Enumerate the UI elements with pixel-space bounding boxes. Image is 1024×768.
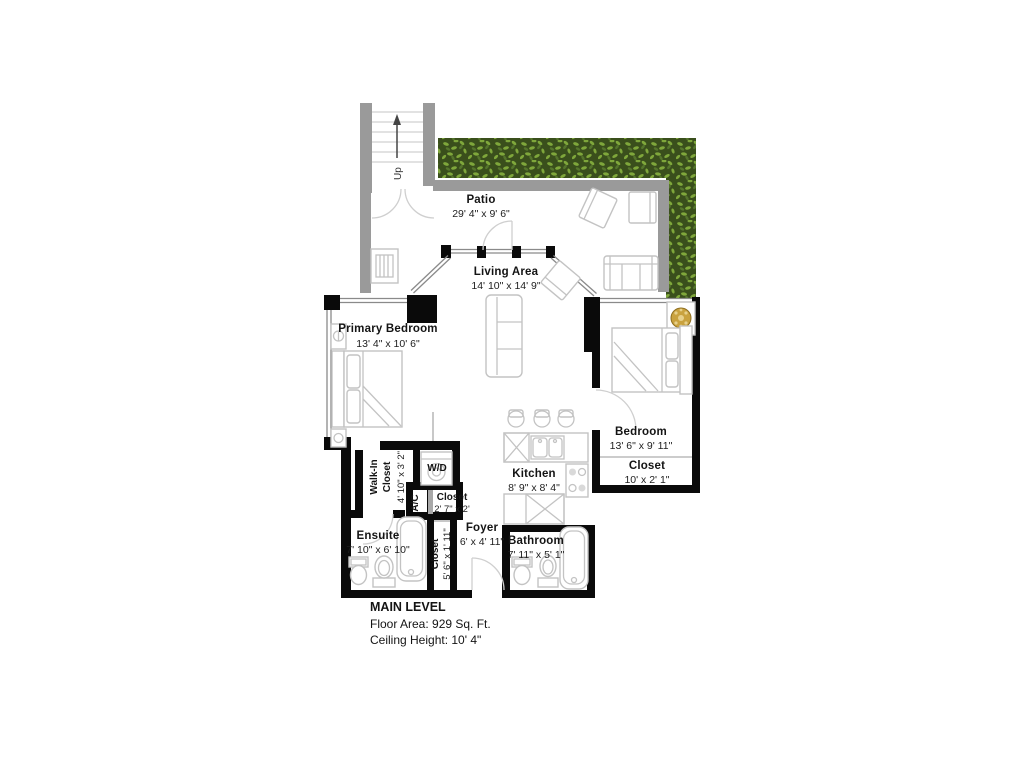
- svg-text:Primary Bedroom: Primary Bedroom: [338, 323, 438, 335]
- stair-door-arc: [405, 189, 434, 218]
- room-label-ac: A/C: [410, 494, 421, 511]
- room-label-patio: Patio 29' 4" x 9' 6": [452, 194, 510, 220]
- svg-text:Closet: Closet: [430, 538, 441, 569]
- svg-text:13' 4" x 10' 6": 13' 4" x 10' 6": [356, 338, 420, 350]
- svg-text:Kitchen: Kitchen: [512, 468, 556, 480]
- room-label-living-area: Living Area 14' 10" x 14' 9": [471, 266, 541, 292]
- patio-sofa: [604, 256, 658, 290]
- svg-text:Ensuite: Ensuite: [357, 530, 400, 542]
- svg-text:4' 10" x 3' 2": 4' 10" x 3' 2": [396, 451, 407, 503]
- svg-text:14' 10" x 14' 9": 14' 10" x 14' 9": [471, 280, 541, 292]
- stove: [566, 464, 588, 497]
- svg-text:2' 7" x 2': 2' 7" x 2': [434, 504, 470, 515]
- ensuite-sink: [373, 556, 395, 587]
- svg-text:Living Area: Living Area: [474, 266, 539, 278]
- bedroom-bed: [612, 326, 692, 394]
- bedroom-door-arc: [596, 390, 636, 430]
- room-label-wd: W/D: [427, 463, 446, 474]
- stair-door-arc: [372, 189, 401, 218]
- hedge-right: [666, 178, 696, 298]
- entry-door-arc: [472, 558, 504, 590]
- room-label-bedroom-closet: Closet 10' x 2' 1": [624, 460, 669, 486]
- svg-text:5' 6" x 1' 11": 5' 6" x 1' 11": [442, 528, 453, 579]
- room-label-walk-in-closet: Walk-In Closet 4' 10" x 3' 2": [369, 451, 407, 503]
- room-label-foyer: Foyer 6' x 4' 11": [460, 522, 505, 548]
- kitchen-stools: [508, 410, 574, 427]
- floor-plan-page: Up: [0, 0, 1024, 768]
- svg-text:Bathroom: Bathroom: [508, 535, 564, 547]
- svg-text:Walk-In: Walk-In: [369, 459, 380, 494]
- living-armchair: [541, 260, 581, 300]
- plan-footer: MAIN LEVEL Floor Area: 929 Sq. Ft. Ceili…: [370, 600, 491, 647]
- room-label-primary-bedroom: Primary Bedroom 13' 4" x 10' 6": [338, 323, 438, 350]
- svg-text:Closet: Closet: [629, 460, 665, 472]
- stairwell: Up: [360, 103, 435, 218]
- svg-text:Closet: Closet: [437, 492, 468, 503]
- floor-area-text: Floor Area: 929 Sq. Ft.: [370, 617, 491, 631]
- floor-plan-drawing: Up: [0, 0, 1024, 768]
- room-label-bathroom: Bathroom 7' 11" x 5' 1": [508, 535, 565, 561]
- ceiling-height-text: Ceiling Height: 10' 4": [370, 633, 481, 647]
- patio-chair: [629, 192, 656, 223]
- kitchen-cabinets: [504, 494, 564, 524]
- stairs-up-label: Up: [393, 167, 404, 180]
- room-label-bedroom: Bedroom 13' 6" x 9' 11": [610, 426, 673, 452]
- ac-louver-door: [428, 490, 433, 514]
- hedge-top: [438, 138, 696, 178]
- kitchen-counter: [504, 433, 588, 462]
- svg-text:Patio: Patio: [466, 194, 495, 206]
- svg-text:Closet: Closet: [382, 461, 393, 492]
- svg-text:Bedroom: Bedroom: [615, 426, 667, 438]
- svg-text:Foyer: Foyer: [466, 522, 499, 534]
- svg-text:8' 9" x 8' 4": 8' 9" x 8' 4": [508, 482, 560, 494]
- svg-text:7' 10" x 6' 10": 7' 10" x 6' 10": [346, 544, 410, 556]
- patio-chair: [579, 188, 618, 229]
- patio-door-arc: [483, 221, 512, 250]
- svg-text:29' 4" x 9' 6": 29' 4" x 9' 6": [452, 208, 510, 220]
- primary-bed: [332, 351, 402, 427]
- svg-text:7' 11" x 5' 1": 7' 11" x 5' 1": [508, 549, 565, 561]
- ensuite-toilet: [349, 557, 368, 585]
- room-label-kitchen: Kitchen 8' 9" x 8' 4": [508, 468, 560, 494]
- bathroom-toilet: [512, 557, 532, 585]
- svg-text:13' 6" x 9' 11": 13' 6" x 9' 11": [610, 440, 673, 452]
- level-title: MAIN LEVEL: [370, 600, 446, 614]
- patio-grill: [371, 249, 398, 283]
- nightstand: [331, 429, 346, 447]
- svg-text:10' x 2' 1": 10' x 2' 1": [624, 474, 669, 486]
- svg-text:6' x 4' 11": 6' x 4' 11": [460, 536, 505, 548]
- living-sofa: [486, 295, 522, 377]
- room-label-hall-closet: Closet 2' 7" x 2': [434, 492, 470, 515]
